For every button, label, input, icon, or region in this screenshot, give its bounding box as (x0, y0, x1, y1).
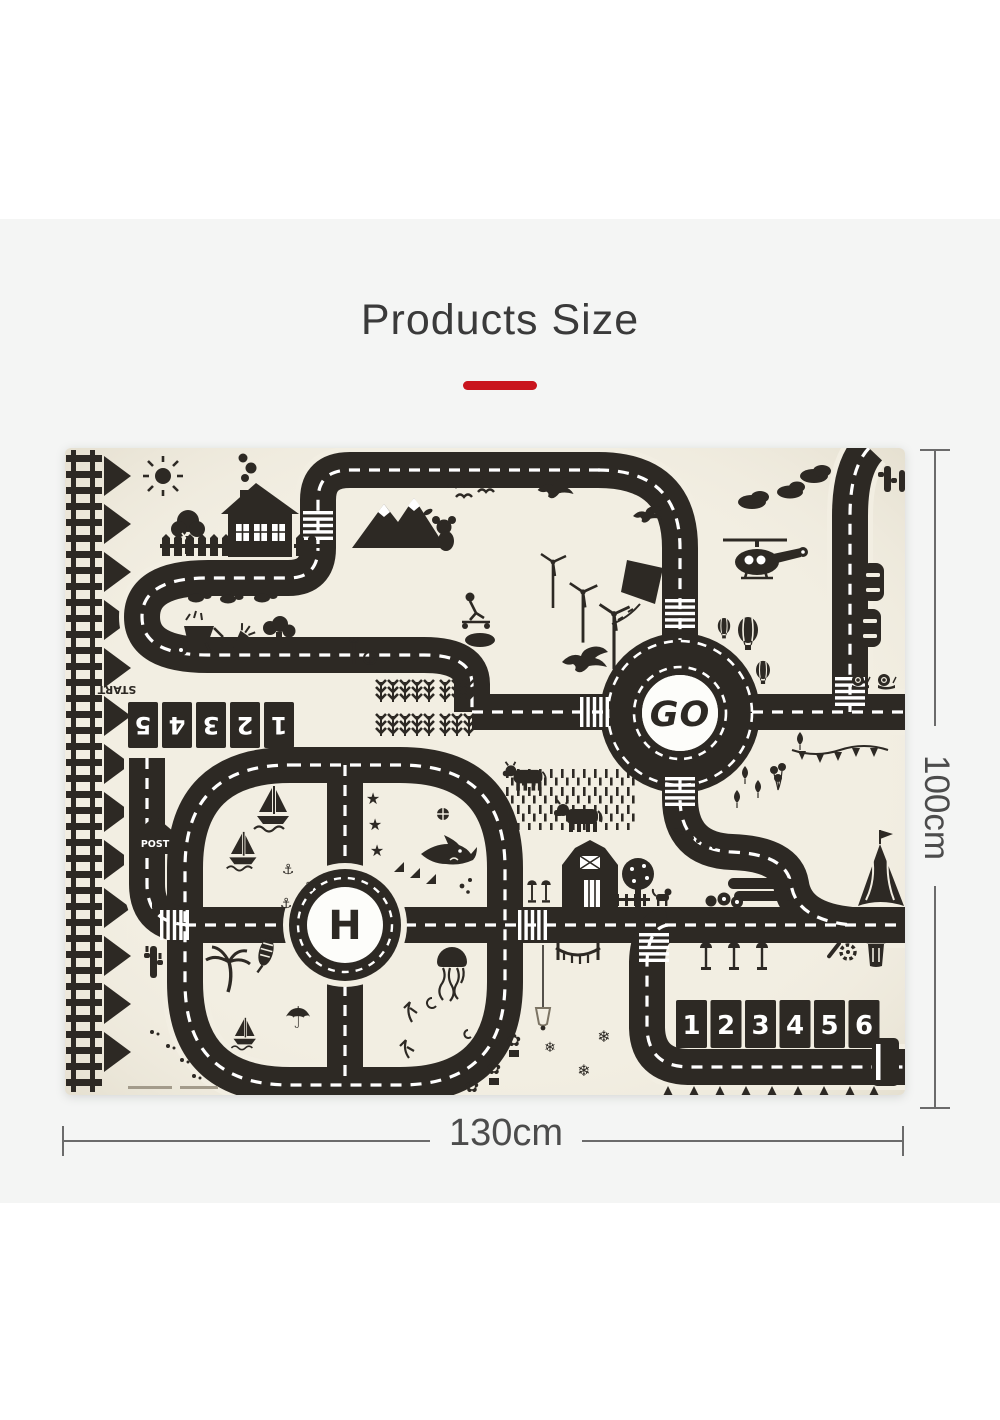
fine-print-mark (128, 1086, 172, 1089)
height-dim-line-bottom (934, 886, 936, 1108)
start-lane-3: 3 (203, 711, 220, 739)
flower-icon: ✿ (507, 1031, 521, 1051)
anchor-icon: ⚓ (302, 880, 315, 896)
parking-space-1: 1 (682, 1011, 700, 1041)
play-mat-image: GO H 1 2 3 4 5 6 (65, 448, 905, 1095)
height-dimension-label: 100cm (910, 726, 956, 890)
start-lane-4: 4 (169, 711, 186, 739)
parking-space-5: 5 (820, 1011, 838, 1041)
flower-icon: ✿ (487, 1059, 501, 1079)
height-dim-line-top (934, 450, 936, 726)
parked-truck-icon (872, 1038, 899, 1086)
sun-icon (143, 456, 183, 496)
snowflake-icon: ❄ (577, 1061, 590, 1080)
parked-car-icon (862, 563, 884, 601)
umbrella-icon: ☂ (285, 1001, 312, 1036)
flower-icon: ✿ (465, 1077, 479, 1095)
star-icon: ★ (370, 841, 384, 860)
height-dim-cap-bottom (920, 1107, 950, 1109)
flower-pot-icon: ✿ (487, 1059, 501, 1085)
parking-space-2: 2 (717, 1011, 735, 1041)
snowflake-icon: ❄ (544, 1040, 556, 1056)
title-underline-accent (463, 381, 537, 390)
anchor-icon: ⚓ (280, 896, 293, 912)
flower-pot-icon: ✿ (465, 1077, 479, 1095)
width-dimension-label: 130cm (430, 1112, 582, 1155)
start-lane-2: 2 (237, 711, 254, 739)
parking-space-4: 4 (786, 1011, 804, 1041)
parked-car-icon (859, 609, 881, 647)
star-icon: ★ (366, 789, 380, 808)
start-lane-1: 1 (271, 711, 288, 739)
railroad-track (66, 450, 102, 1092)
helipad-label: H (328, 903, 361, 949)
star-icon: ★ (368, 815, 382, 834)
height-dim-cap-top (920, 449, 950, 451)
width-dim-line-right (582, 1140, 902, 1142)
product-size-page: Products Size (0, 0, 1000, 1420)
start-label: START (97, 683, 136, 696)
anchor-icon: ⚓ (282, 862, 295, 878)
width-dim-line-left (64, 1140, 430, 1142)
post-sign-label: POST (141, 839, 170, 850)
width-dim-cap-left (62, 1126, 64, 1156)
snowflake-icon: ❄ (597, 1027, 610, 1046)
fine-print-mark (180, 1086, 218, 1089)
parking-space-3: 3 (751, 1011, 769, 1041)
go-roundabout-label: GO (650, 695, 710, 735)
flower-pot-icon: ✿ (507, 1031, 521, 1057)
beach-ball-icon (437, 808, 449, 820)
start-lane-5: 5 (135, 711, 152, 739)
width-dim-cap-right (902, 1126, 904, 1156)
page-title: Products Size (0, 296, 1000, 345)
parking-space-6: 6 (855, 1011, 873, 1041)
